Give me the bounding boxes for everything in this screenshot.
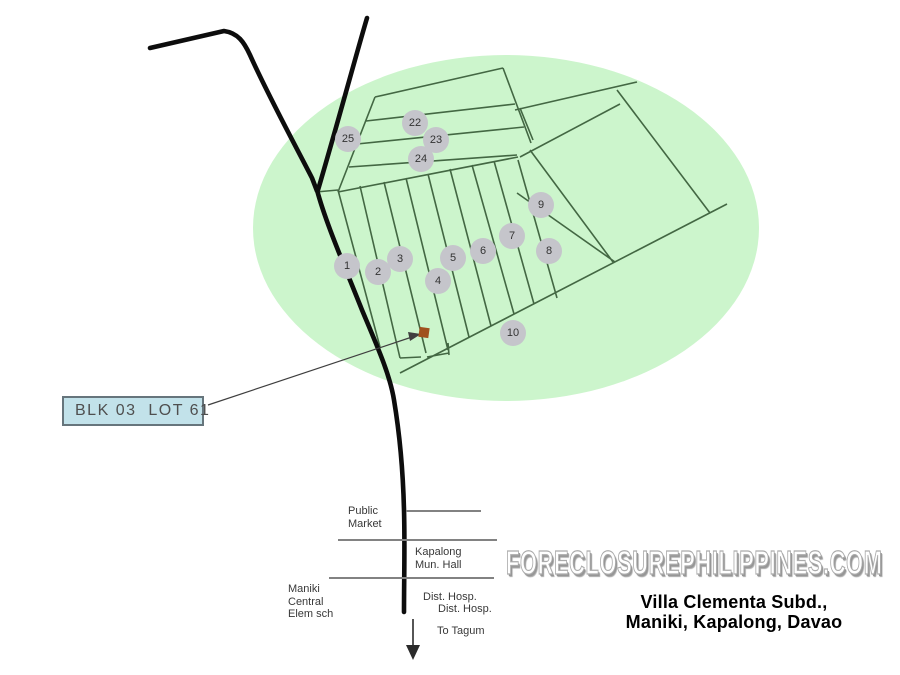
label-municipal-hall: Kapalong Mun. Hall <box>415 546 462 571</box>
label-public-market: Public Market <box>348 505 382 530</box>
label-elem-school: Maniki Central Elem sch <box>288 583 333 621</box>
block-marker-4: 4 <box>425 268 451 294</box>
subject-lot-square <box>418 327 429 338</box>
label-district-hospital-2: Dist. Hosp. <box>438 603 492 616</box>
block-marker-7: 7 <box>499 223 525 249</box>
south-arrow-head <box>406 645 420 660</box>
label-district-hospital-1: Dist. Hosp. <box>423 591 477 604</box>
map-caption: Villa Clementa Subd., Maniki, Kapalong, … <box>600 593 868 632</box>
lot-callout-label: BLK 03 LOT 61 <box>75 402 210 420</box>
block-marker-8: 8 <box>536 238 562 264</box>
block-marker-3: 3 <box>387 246 413 272</box>
block-marker-6: 6 <box>470 238 496 264</box>
label-to-tagum: To Tagum <box>437 625 485 638</box>
lot-callout-box: BLK 03 LOT 61 <box>62 396 204 426</box>
block-marker-24: 24 <box>408 146 434 172</box>
block-marker-5: 5 <box>440 245 466 271</box>
block-marker-25: 25 <box>335 126 361 152</box>
block-marker-9: 9 <box>528 192 554 218</box>
watermark-text: FORECLOSUREPHILIPPINES.COM <box>506 544 883 582</box>
block-marker-10: 10 <box>500 320 526 346</box>
location-map: 2522232412345678910 BLK 03 LOT 61 Public… <box>0 0 900 675</box>
block-marker-1: 1 <box>334 253 360 279</box>
